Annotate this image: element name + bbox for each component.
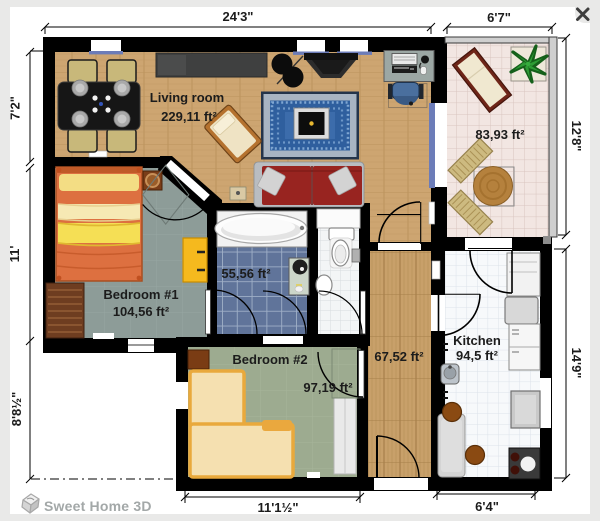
svg-text:12'8": 12'8"	[569, 121, 584, 152]
svg-text:11': 11'	[7, 246, 22, 263]
svg-text:83,93 ft²: 83,93 ft²	[475, 127, 525, 142]
svg-text:6'4": 6'4"	[475, 499, 499, 514]
svg-text:6'7": 6'7"	[487, 10, 511, 25]
svg-text:Living room: Living room	[150, 90, 224, 105]
svg-text:14'9": 14'9"	[569, 348, 584, 379]
svg-text:55,56 ft²: 55,56 ft²	[221, 266, 271, 281]
svg-text:67,52 ft²: 67,52 ft²	[374, 349, 424, 364]
svg-text:104,56 ft²: 104,56 ft²	[113, 304, 170, 319]
svg-text:24'3": 24'3"	[223, 9, 254, 24]
svg-text:Bedroom #2: Bedroom #2	[232, 352, 307, 367]
svg-text:97,19 ft²: 97,19 ft²	[303, 380, 353, 395]
svg-text:94,5 ft²: 94,5 ft²	[456, 348, 499, 363]
svg-text:Sweet Home 3D: Sweet Home 3D	[44, 498, 152, 514]
svg-text:7'2": 7'2"	[8, 96, 23, 120]
svg-text:Bedroom #1: Bedroom #1	[103, 287, 178, 302]
svg-text:Kitchen: Kitchen	[453, 333, 501, 348]
svg-text:229,11 ft²: 229,11 ft²	[161, 109, 217, 124]
svg-text:11'1½": 11'1½"	[257, 500, 298, 515]
svg-text:8'8½": 8'8½"	[9, 392, 24, 427]
